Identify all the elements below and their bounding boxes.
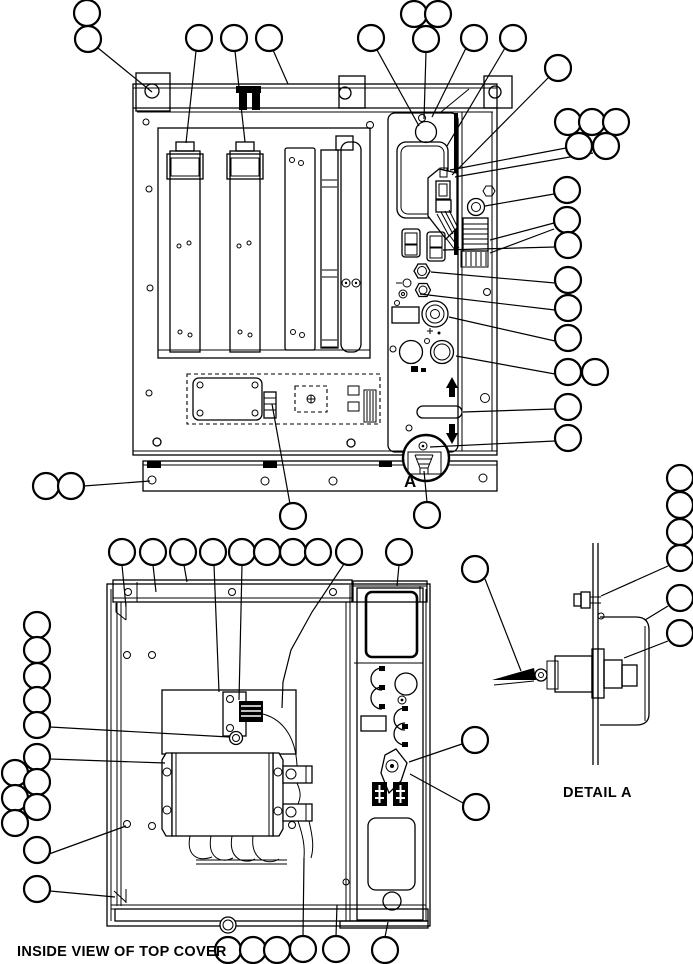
callout-balloon [2,810,28,836]
leader-line [447,48,505,146]
callout-balloon [463,794,489,820]
leader-line [645,606,668,620]
callout-balloon [461,25,487,51]
callout-balloon [667,545,693,571]
leader-line [624,641,668,658]
fuse-holder-1 [167,142,203,352]
leader-line [336,905,337,936]
callout-balloon [24,663,50,689]
leader-line [49,826,126,854]
panel-hardware [390,264,462,444]
callout-balloon [280,503,306,529]
leader-line [397,565,399,586]
callout-balloon [555,394,581,420]
callout-balloon [256,25,282,51]
leader-line [601,566,668,596]
toggle-switch [492,649,637,698]
callout-balloon [170,539,196,565]
detail-a-drawing [492,543,649,765]
leader-line [490,229,554,253]
blank-card [285,148,315,350]
callout-balloon [555,295,581,321]
cover-bottom-rail [111,905,428,933]
callout-balloon [254,539,280,565]
gasket-strip [336,136,361,352]
callout-balloon [555,325,581,351]
leader-line [431,272,555,283]
top-cover-drawing [107,580,430,933]
leader-line [153,565,156,592]
callout-balloon [545,55,571,81]
callout-balloon [582,359,608,385]
leader-line [485,579,521,671]
callout-balloon [358,25,384,51]
callout-balloon [24,637,50,663]
callout-balloon [186,25,212,51]
callout-balloon [555,267,581,293]
callout-balloon [24,837,50,863]
callout-balloon [386,539,412,565]
callout-balloon [667,519,693,545]
callout-balloon [24,687,50,713]
callout-balloon [372,937,398,963]
callout-balloon [280,539,306,565]
switch-bracket [600,617,649,725]
callout-balloon [566,133,592,159]
leader-line [432,48,466,117]
leader-line [282,564,344,708]
ribbon-connector [461,218,488,267]
leader-line [424,52,426,119]
callout-balloon [24,744,50,770]
panel-bolt [574,592,604,619]
rocker-switches [402,229,445,261]
line-filter-transformer [162,753,287,864]
detail-marker-label: A [404,472,416,491]
callout-balloon [140,539,166,565]
leader-line [50,891,115,897]
callout-balloon [305,539,331,565]
callout-balloon [667,620,693,646]
callout-balloon [200,539,226,565]
callout-balloon [413,26,439,52]
cover-subpanel [343,585,423,921]
leader-line [98,48,152,92]
callout-balloon [323,936,349,962]
callout-balloon [229,539,255,565]
callout-balloon [462,727,488,753]
parts-diagram-page: A [0,0,693,964]
pcb-area [187,374,380,424]
top-assembly-drawing: A [133,73,512,491]
leader-line [385,922,388,937]
detail-a-caption: DETAIL A [563,785,632,801]
callout-balloon [24,769,50,795]
callout-balloon [221,25,247,51]
leader-line [410,774,463,803]
callout-balloon [24,612,50,638]
leader-line [186,51,196,143]
callout-balloon [414,502,440,528]
callout-balloon [24,876,50,902]
fuse-holder-2 [227,142,263,352]
leader-line [239,565,242,700]
callout-balloon [290,936,316,962]
callout-balloon [109,539,135,565]
detail-a-locator: A [403,435,449,491]
callout-balloon [555,232,581,258]
callout-balloon [603,109,629,135]
callout-balloon [593,133,619,159]
callout-balloon [500,25,526,51]
callout-balloon [240,937,266,963]
callout-balloon [401,1,427,27]
callout-balloon [33,473,59,499]
leader-line [122,565,126,607]
callout-balloon [336,539,362,565]
leader-line [273,50,288,84]
callout-balloon [554,177,580,203]
callout-balloon [555,359,581,385]
callout-balloon [667,465,693,491]
switch-lever [492,668,536,680]
callout-balloon [667,492,693,518]
leader-line [303,858,304,936]
leader-line [485,194,554,206]
callout-balloon [462,556,488,582]
leader-line [463,409,555,412]
callout-balloons [2,0,693,963]
leader-line [449,317,555,341]
leader-line [272,404,290,504]
leader-line [490,223,554,240]
parts-diagram: A [0,0,693,964]
callout-balloon [24,712,50,738]
callout-balloon [264,937,290,963]
leader-line [456,356,555,374]
callout-balloon [58,473,84,499]
callout-balloon [579,109,605,135]
callout-balloon [667,585,693,611]
callout-balloon [555,425,581,451]
callout-balloon [24,794,50,820]
inside-view-caption: INSIDE VIEW OF TOP COVER [17,944,227,960]
callout-balloon [425,1,451,27]
callout-balloon [74,0,100,26]
rail-strip [321,150,338,348]
callout-balloon [75,26,101,52]
leader-line [409,744,462,762]
leader-line [84,481,150,486]
callout-balloon [555,109,581,135]
panel-holes [143,119,374,447]
cover-left-fold [114,602,126,906]
leader-line [50,727,229,737]
callout-balloon [554,207,580,233]
